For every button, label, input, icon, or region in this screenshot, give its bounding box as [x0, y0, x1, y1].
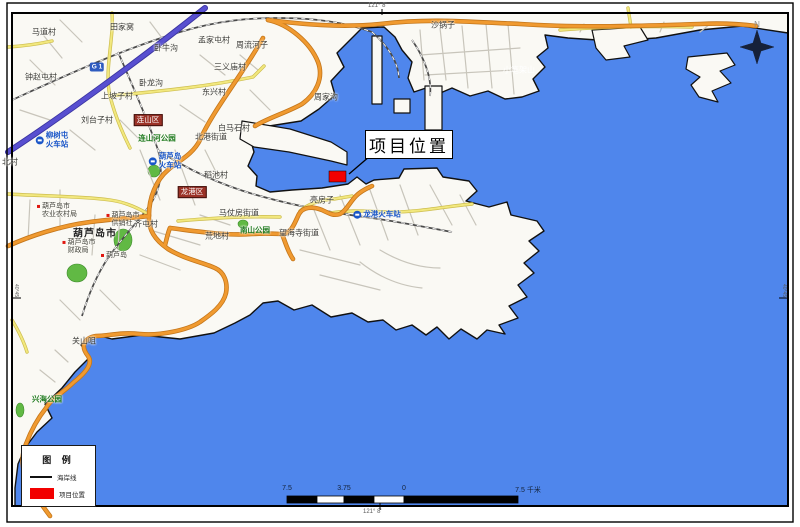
north-arrow-label: N [754, 20, 760, 29]
legend-item-label: 项目位置 [59, 489, 85, 499]
project-location-swatch [30, 488, 54, 499]
legend-title: 图 例 [22, 453, 95, 466]
coastline-swatch [30, 476, 52, 478]
project-location-marker [329, 171, 346, 182]
scalebar-label: 3.75 [337, 485, 351, 492]
legend: 图 例 海岸线 项目位置 [21, 445, 96, 507]
map-figure: N 马道村田家窝孟家屯村周流河子卧牛沟三义庙村卧龙沟东兴村钟赵屯村上坡子村刘台子… [0, 0, 800, 527]
scalebar-label: 0 [402, 485, 406, 492]
legend-item-label: 海岸线 [57, 472, 77, 482]
coordinate-top: 121° 8' [368, 3, 387, 9]
coordinate-bottom: 121° 8' [363, 509, 382, 515]
scalebar-label: 7.5 千米 [515, 485, 541, 495]
scale-bar [287, 496, 518, 503]
legend-item-project: 项目位置 [30, 488, 95, 499]
coordinate-left: 40°45' [13, 284, 19, 298]
coordinate-right: 40°45' [781, 284, 787, 298]
legend-item-coastline: 海岸线 [30, 472, 95, 482]
project-location-callout: 项目位置 [365, 130, 453, 159]
map-canvas: N [0, 0, 800, 527]
scalebar-label: 7.5 [282, 485, 292, 492]
